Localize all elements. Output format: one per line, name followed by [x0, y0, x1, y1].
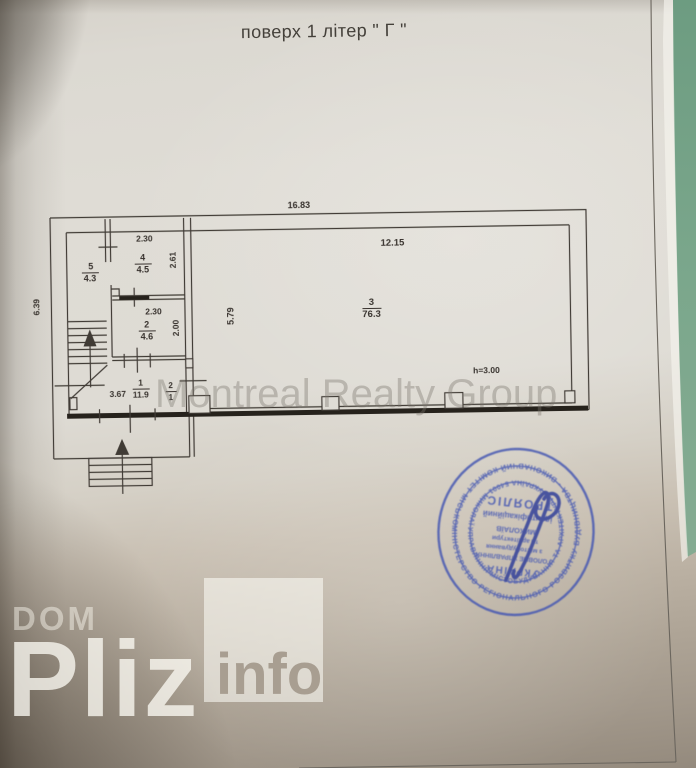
svg-text:Montreal Realty Group: Montreal Realty Group: [155, 372, 557, 416]
svg-text:6.39: 6.39: [31, 299, 41, 316]
svg-text:2.61: 2.61: [168, 251, 178, 268]
svg-text:поверх 1 літер " Г ": поверх 1 літер " Г ": [241, 20, 407, 42]
svg-text:12.15: 12.15: [380, 237, 405, 248]
svg-text:1: 1: [138, 378, 143, 388]
svg-text:4.3: 4.3: [84, 273, 97, 283]
svg-text:11.9: 11.9: [133, 389, 150, 399]
svg-text:2: 2: [144, 319, 149, 329]
svg-text:3: 3: [369, 297, 374, 308]
svg-text:4.5: 4.5: [136, 264, 149, 274]
svg-text:info: info: [216, 642, 322, 707]
svg-text:2.00: 2.00: [171, 319, 181, 336]
svg-text:5: 5: [88, 261, 93, 271]
svg-text:3.67: 3.67: [109, 389, 126, 399]
svg-text:2.30: 2.30: [136, 233, 153, 243]
svg-text:2.30: 2.30: [145, 306, 162, 316]
svg-text:4.6: 4.6: [141, 331, 154, 341]
svg-text:Pliz: Pliz: [7, 618, 199, 739]
svg-text:5.79: 5.79: [225, 307, 235, 325]
svg-text:16.83: 16.83: [287, 200, 310, 210]
svg-text:76.3: 76.3: [362, 309, 381, 320]
svg-text:4: 4: [140, 253, 145, 263]
